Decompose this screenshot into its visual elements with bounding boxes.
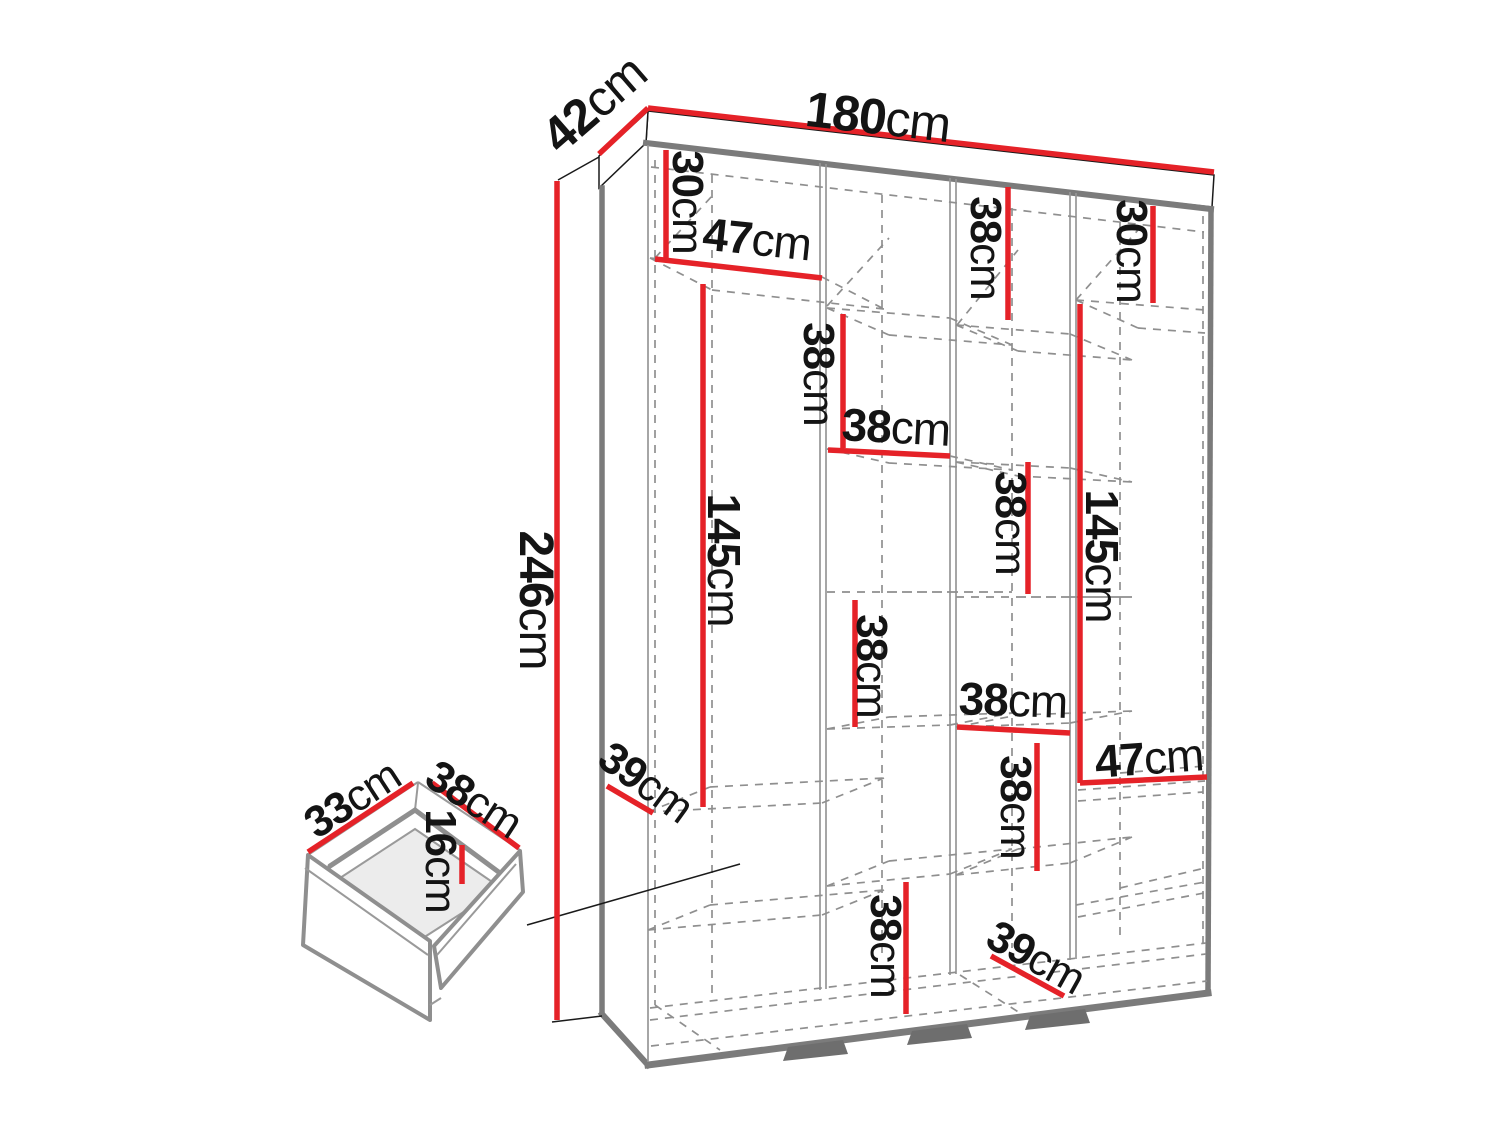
dimension-label-height-246: 246cm bbox=[510, 530, 563, 669]
wardrobe-feet bbox=[783, 1009, 1090, 1061]
dimension-label-c4-30: 30cm bbox=[1108, 199, 1157, 303]
dimension-label-c1-47: 47cm bbox=[700, 207, 813, 270]
wardrobe-dimension-diagram: 246cm180cm42cm30cm47cm145cm39cm38cm38cm3… bbox=[0, 0, 1500, 1125]
carcass-right-edge bbox=[1208, 209, 1211, 993]
dimension-label-c1-39: 39cm bbox=[590, 732, 703, 833]
dimension-label-c2-38-shelf: 38cm bbox=[840, 398, 951, 456]
dimension-line-c3-38-shelf bbox=[957, 727, 1070, 733]
dimension-label-c3-38-shelf: 38cm bbox=[958, 672, 1068, 728]
shelf-c2-5 bbox=[827, 849, 1012, 886]
shelf-c1-low bbox=[648, 890, 884, 930]
dimension-label-c4-145: 145cm bbox=[1076, 489, 1128, 622]
drawer-back-corner-edge bbox=[415, 783, 418, 810]
dimension-label-c3-38-upper: 38cm bbox=[962, 196, 1011, 300]
dimension-label-c2-38-upper: 38cm bbox=[795, 322, 844, 426]
dimension-label-drawer-16: 16cm bbox=[417, 809, 466, 913]
dimension-label-c3-38-lower: 38cm bbox=[992, 755, 1041, 859]
shelf-c4-1 bbox=[1076, 300, 1205, 333]
shelf-c2-1 bbox=[827, 308, 1012, 345]
shelf-c4-3 bbox=[1076, 868, 1205, 917]
dimension-label-c2-38-middle: 38cm bbox=[848, 614, 897, 718]
shelf-c3-2 bbox=[956, 462, 1132, 482]
partition-3 bbox=[1070, 192, 1076, 960]
carcass-bottom-left-corner bbox=[602, 1014, 648, 1065]
dimension-label-c2-38-lower: 38cm bbox=[862, 894, 911, 998]
partition-1 bbox=[820, 163, 826, 990]
shelf-c3-5 bbox=[956, 837, 1132, 875]
dimension-label-drawer-33: 33cm bbox=[295, 750, 409, 848]
dimension-label-c1-145: 145cm bbox=[698, 493, 750, 626]
dimension-label-c4-47: 47cm bbox=[1093, 728, 1205, 787]
diagram-canvas: 246cm180cm42cm30cm47cm145cm39cm38cm38cm3… bbox=[0, 0, 1500, 1125]
dimension-label-c3-38-middle: 38cm bbox=[987, 471, 1036, 575]
